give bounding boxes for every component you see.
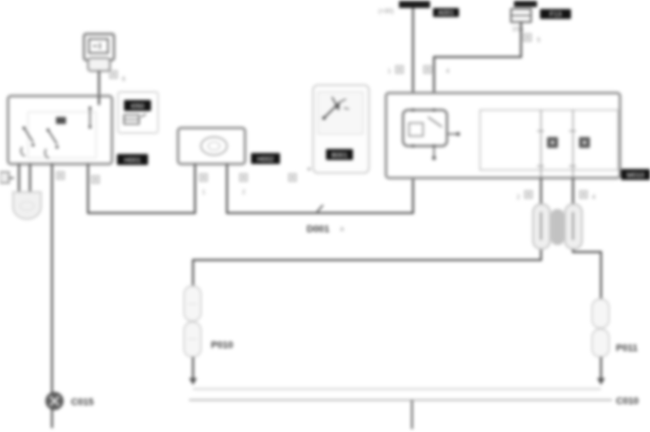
fuse-out-pin-dot (526, 36, 528, 38)
middle-pin-right-dot (242, 176, 244, 178)
splice-suffix: a (340, 226, 344, 233)
battery-pin-label: 1 (388, 69, 392, 75)
middle-pin-left-label: 1 (202, 190, 206, 196)
main-out-pin-right-label: 4 (592, 195, 596, 201)
inner-connector-dot-right (583, 141, 586, 144)
phantom-fusebox: B001 (308, 85, 370, 173)
phantom-corner-mark (308, 168, 311, 171)
main-out-pin-left-dot (527, 193, 529, 195)
aux-unit: I050 (118, 92, 158, 133)
right-load-capsule-bottom (592, 329, 609, 357)
main-unit-tag-text: M010 (627, 173, 645, 180)
connector-pair-shadow (551, 209, 564, 245)
capsule-connector-icon (13, 192, 41, 219)
inner-connector-dot-left (551, 141, 554, 144)
ground-code: C015 (71, 397, 94, 408)
ignition-device-neck (88, 58, 110, 71)
relay-pin-bottom-left (412, 145, 415, 148)
switch2-terminal-b (56, 146, 59, 149)
spare-pin-dot (291, 176, 293, 178)
left-unit-dark-mark (56, 117, 66, 124)
middle-unit-tag-text: H002 (257, 157, 274, 164)
fuse-out-pin-label: 5 (537, 38, 541, 44)
inline-connector-pair (533, 204, 582, 249)
fused-pin-label: 4 (446, 69, 450, 75)
battery-bar-icon (399, 1, 430, 8)
bottom-right-code: C010 (616, 396, 639, 407)
left-load: P010 (184, 286, 233, 385)
relay-right-stub-dot (456, 132, 460, 136)
ignition-device: 6 (84, 34, 126, 96)
right-load-code: P011 (616, 343, 638, 354)
fused-pin-dot (426, 68, 428, 70)
aux-unit-tag-text: I050 (131, 104, 145, 111)
phantom-inner-panel (318, 92, 363, 134)
splice-code: D001 (307, 224, 330, 235)
middle-pin-left-dot (202, 176, 204, 178)
bus-left-wire (88, 164, 195, 213)
main-out-pin-left-label: 2 (517, 195, 521, 201)
bus-pin-dot (94, 178, 96, 180)
aux-unit-box (118, 92, 158, 133)
ignition-pin-dot (112, 73, 114, 75)
relay-bottom-stub-dot (432, 156, 436, 160)
relay-pin-top-left (412, 109, 415, 112)
splice-tick (317, 205, 323, 212)
left-load-arrow-icon (189, 378, 197, 385)
battery-node-tag-text: A001 (438, 10, 454, 17)
capsule-stub-wires (19, 164, 30, 192)
relay-pin-top-right (433, 109, 436, 112)
fuse-rating-label: 10A (512, 26, 524, 33)
fused-bar-icon (514, 1, 537, 7)
plus30-label: (+30) (378, 8, 393, 15)
battery-pin-dot (398, 68, 400, 70)
fuse-tag-text: F13 (549, 12, 561, 19)
right-load-capsule-top (592, 299, 609, 328)
left-unit-terminal-d (89, 126, 92, 129)
left-edge-connector (0, 172, 9, 183)
middle-pin-right-label: 2 (242, 190, 246, 196)
ground-pin-dot (59, 174, 61, 176)
main-out-pin-right-dot (582, 193, 584, 195)
left-unit-terminal-c (89, 107, 92, 110)
right-load: P011 (592, 299, 638, 385)
switch1-terminal-b (32, 144, 35, 147)
left-lower-connector (0, 164, 99, 219)
ignition-pin-label: 6 (122, 77, 126, 83)
right-load-arrow-icon (597, 378, 605, 385)
wiring-diagram: (+30) A001 F13 10A 5 1 4 6 (0, 0, 650, 432)
middle-unit-box (178, 128, 245, 164)
left-load-code: P010 (211, 340, 233, 351)
left-unit-tag-text: H001 (124, 158, 141, 165)
phantom-tag-text: B001 (331, 153, 347, 160)
main-relay-unit: M010 (386, 93, 650, 180)
